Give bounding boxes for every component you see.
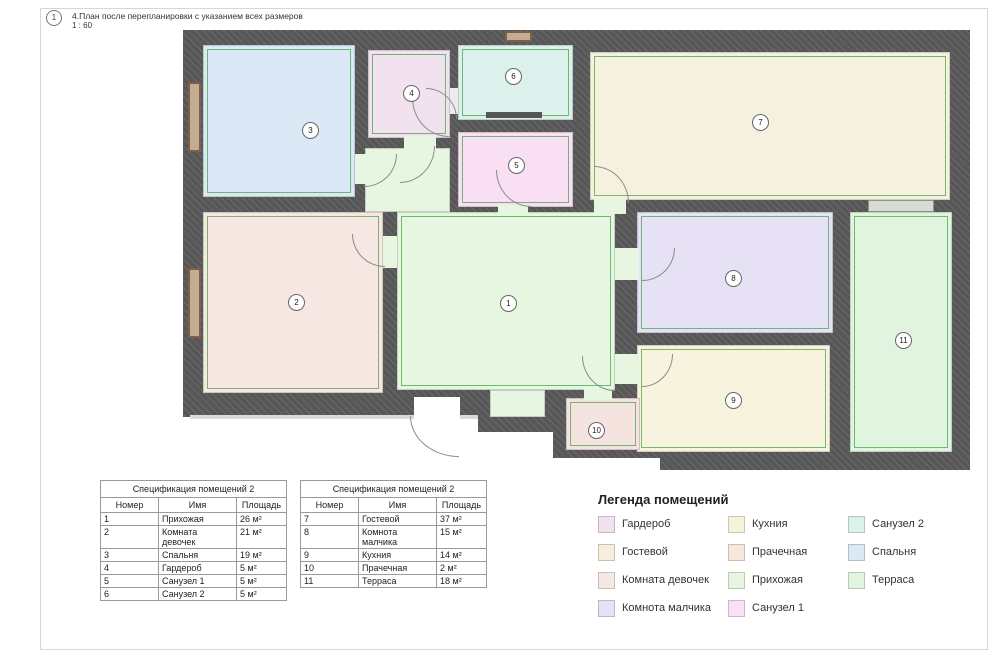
cell: 5 м²: [237, 588, 287, 601]
room-number-1: 1: [500, 295, 517, 312]
table-row: 3Спальня19 м²: [101, 549, 287, 562]
cell: 6: [101, 588, 159, 601]
legend-label: Терраса: [872, 574, 914, 586]
exterior-area: [553, 458, 660, 470]
cell: Санузел 2: [159, 588, 237, 601]
legend-item: Прачечная: [728, 543, 807, 561]
dimension-lines: [594, 56, 946, 196]
exterior-area: [478, 432, 553, 470]
cell: 21 м²: [237, 526, 287, 549]
cell: Терраса: [359, 575, 437, 588]
terrace-window: [868, 200, 934, 212]
cell: Прачечная: [359, 562, 437, 575]
room-number-7: 7: [752, 114, 769, 131]
legend-label: Кухния: [752, 518, 788, 530]
room-number-9: 9: [725, 392, 742, 409]
legend-swatch: [598, 600, 615, 617]
room-number-2: 2: [288, 294, 305, 311]
door-opening: [615, 354, 639, 384]
dimension-lines: [570, 402, 636, 446]
room-number-10: 10: [588, 422, 605, 439]
room-number-4: 4: [403, 85, 420, 102]
counter-fixture: [486, 112, 542, 118]
cell: Кухния: [359, 549, 437, 562]
room-number-5: 5: [508, 157, 525, 174]
door-opening: [615, 248, 639, 280]
cell: 3: [101, 549, 159, 562]
legend-item: Комната девочек: [598, 571, 709, 589]
table-title: Спецификация помещений 2: [301, 481, 487, 498]
legend-label: Санузел 2: [872, 518, 924, 530]
col-header-nomer: Номер: [301, 498, 359, 513]
room-1-notch: [490, 390, 545, 417]
room-10-prachechnaya: [566, 398, 640, 450]
legend-item: Санузел 2: [848, 515, 924, 533]
legend-swatch: [728, 572, 745, 589]
legend-swatch: [728, 600, 745, 617]
table-row: 11Терраса18 м²: [301, 575, 487, 588]
cell: 7: [301, 513, 359, 526]
cell: 8: [301, 526, 359, 549]
legend-label: Санузел 1: [752, 602, 804, 614]
legend-label: Комнота малчика: [622, 602, 711, 614]
table-row: 9Кухния14 м²: [301, 549, 487, 562]
cell: 11: [301, 575, 359, 588]
cell: 5 м²: [237, 562, 287, 575]
cell: 9: [301, 549, 359, 562]
cell: 1: [101, 513, 159, 526]
cell: 4: [101, 562, 159, 575]
legend-swatch: [598, 572, 615, 589]
cell: Гостевой: [359, 513, 437, 526]
legend-item: Гардероб: [598, 515, 670, 533]
table-row: 8Комнота малчика15 м²: [301, 526, 487, 549]
cell: Спальня: [159, 549, 237, 562]
legend-item: Спальня: [848, 543, 916, 561]
cell: 10: [301, 562, 359, 575]
legend-label: Прихожая: [752, 574, 803, 586]
table-row: 6Санузел 25 м²: [101, 588, 287, 601]
legend-swatch: [598, 544, 615, 561]
cell: 15 м²: [437, 526, 487, 549]
table-row: 10Прачечная2 м²: [301, 562, 487, 575]
dimension-lines: [207, 49, 351, 193]
room-3-spalnya: [203, 45, 355, 197]
col-header-ploshchad: Площадь: [237, 498, 287, 513]
cell: 26 м²: [237, 513, 287, 526]
cell: Комнота малчика: [359, 526, 437, 549]
room-number-11: 11: [895, 332, 912, 349]
cell: 2 м²: [437, 562, 487, 575]
col-header-ploshchad: Площадь: [437, 498, 487, 513]
legend-label: Спальня: [872, 546, 916, 558]
window: [505, 31, 532, 42]
room-number-8: 8: [725, 270, 742, 287]
cell: 14 м²: [437, 549, 487, 562]
room-number-3: 3: [302, 122, 319, 139]
col-header-imya: Имя: [359, 498, 437, 513]
legend-swatch: [848, 572, 865, 589]
legend-swatch: [848, 544, 865, 561]
col-header-nomer: Номер: [101, 498, 159, 513]
cell: 19 м²: [237, 549, 287, 562]
cell: 5 м²: [237, 575, 287, 588]
cell: Гардероб: [159, 562, 237, 575]
window: [188, 82, 201, 152]
legend-item: Кухния: [728, 515, 788, 533]
table-row: 7Гостевой37 м²: [301, 513, 487, 526]
table-row: 1Прихожая26 м²: [101, 513, 287, 526]
room-7-gostevoy: [590, 52, 950, 200]
legend-item: Прихожая: [728, 571, 803, 589]
cell: 2: [101, 526, 159, 549]
cell: Прихожая: [159, 513, 237, 526]
legend-label: Гардероб: [622, 518, 670, 530]
table-row: 5Санузел 15 м²: [101, 575, 287, 588]
room-number-6: 6: [505, 68, 522, 85]
table-row: 2Комната девочек21 м²: [101, 526, 287, 549]
cell: Санузел 1: [159, 575, 237, 588]
legend-label: Гостевой: [622, 546, 668, 558]
window: [188, 268, 201, 338]
legend-item: Санузел 1: [728, 599, 804, 617]
legend-item: Терраса: [848, 571, 914, 589]
door-opening: [383, 236, 397, 268]
legend-label: Комната девочек: [622, 574, 709, 586]
legend-item: Гостевой: [598, 543, 668, 561]
cell: 5: [101, 575, 159, 588]
spec-table-2: Спецификация помещений 2 Номер Имя Площа…: [300, 480, 487, 588]
cell: Комната девочек: [159, 526, 237, 549]
legend-title: Легенда помещений: [598, 492, 728, 507]
cell: 18 м²: [437, 575, 487, 588]
legend-label: Прачечная: [752, 546, 807, 558]
legend-swatch: [728, 516, 745, 533]
legend-swatch: [728, 544, 745, 561]
spec-table-1: Спецификация помещений 2 Номер Имя Площа…: [100, 480, 287, 601]
legend-swatch: [598, 516, 615, 533]
legend-item: Комнота малчика: [598, 599, 711, 617]
col-header-imya: Имя: [159, 498, 237, 513]
table-title: Спецификация помещений 2: [101, 481, 287, 498]
cell: 37 м²: [437, 513, 487, 526]
table-row: 4Гардероб5 м²: [101, 562, 287, 575]
legend-swatch: [848, 516, 865, 533]
